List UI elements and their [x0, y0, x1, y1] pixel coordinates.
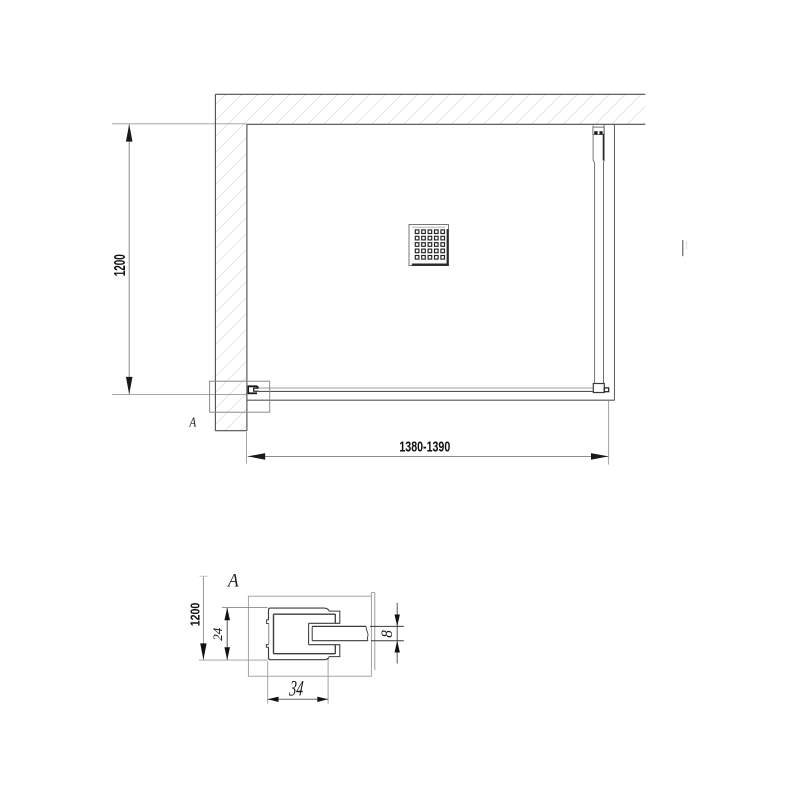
- svg-text:A: A: [227, 570, 239, 591]
- svg-text:24: 24: [210, 627, 225, 641]
- svg-text:1380-1390: 1380-1390: [399, 438, 450, 455]
- svg-text:1200: 1200: [111, 254, 129, 276]
- svg-text:34: 34: [288, 676, 305, 700]
- svg-text:8: 8: [379, 630, 396, 638]
- svg-text:A: A: [189, 414, 197, 429]
- svg-text:1200: 1200: [189, 603, 203, 627]
